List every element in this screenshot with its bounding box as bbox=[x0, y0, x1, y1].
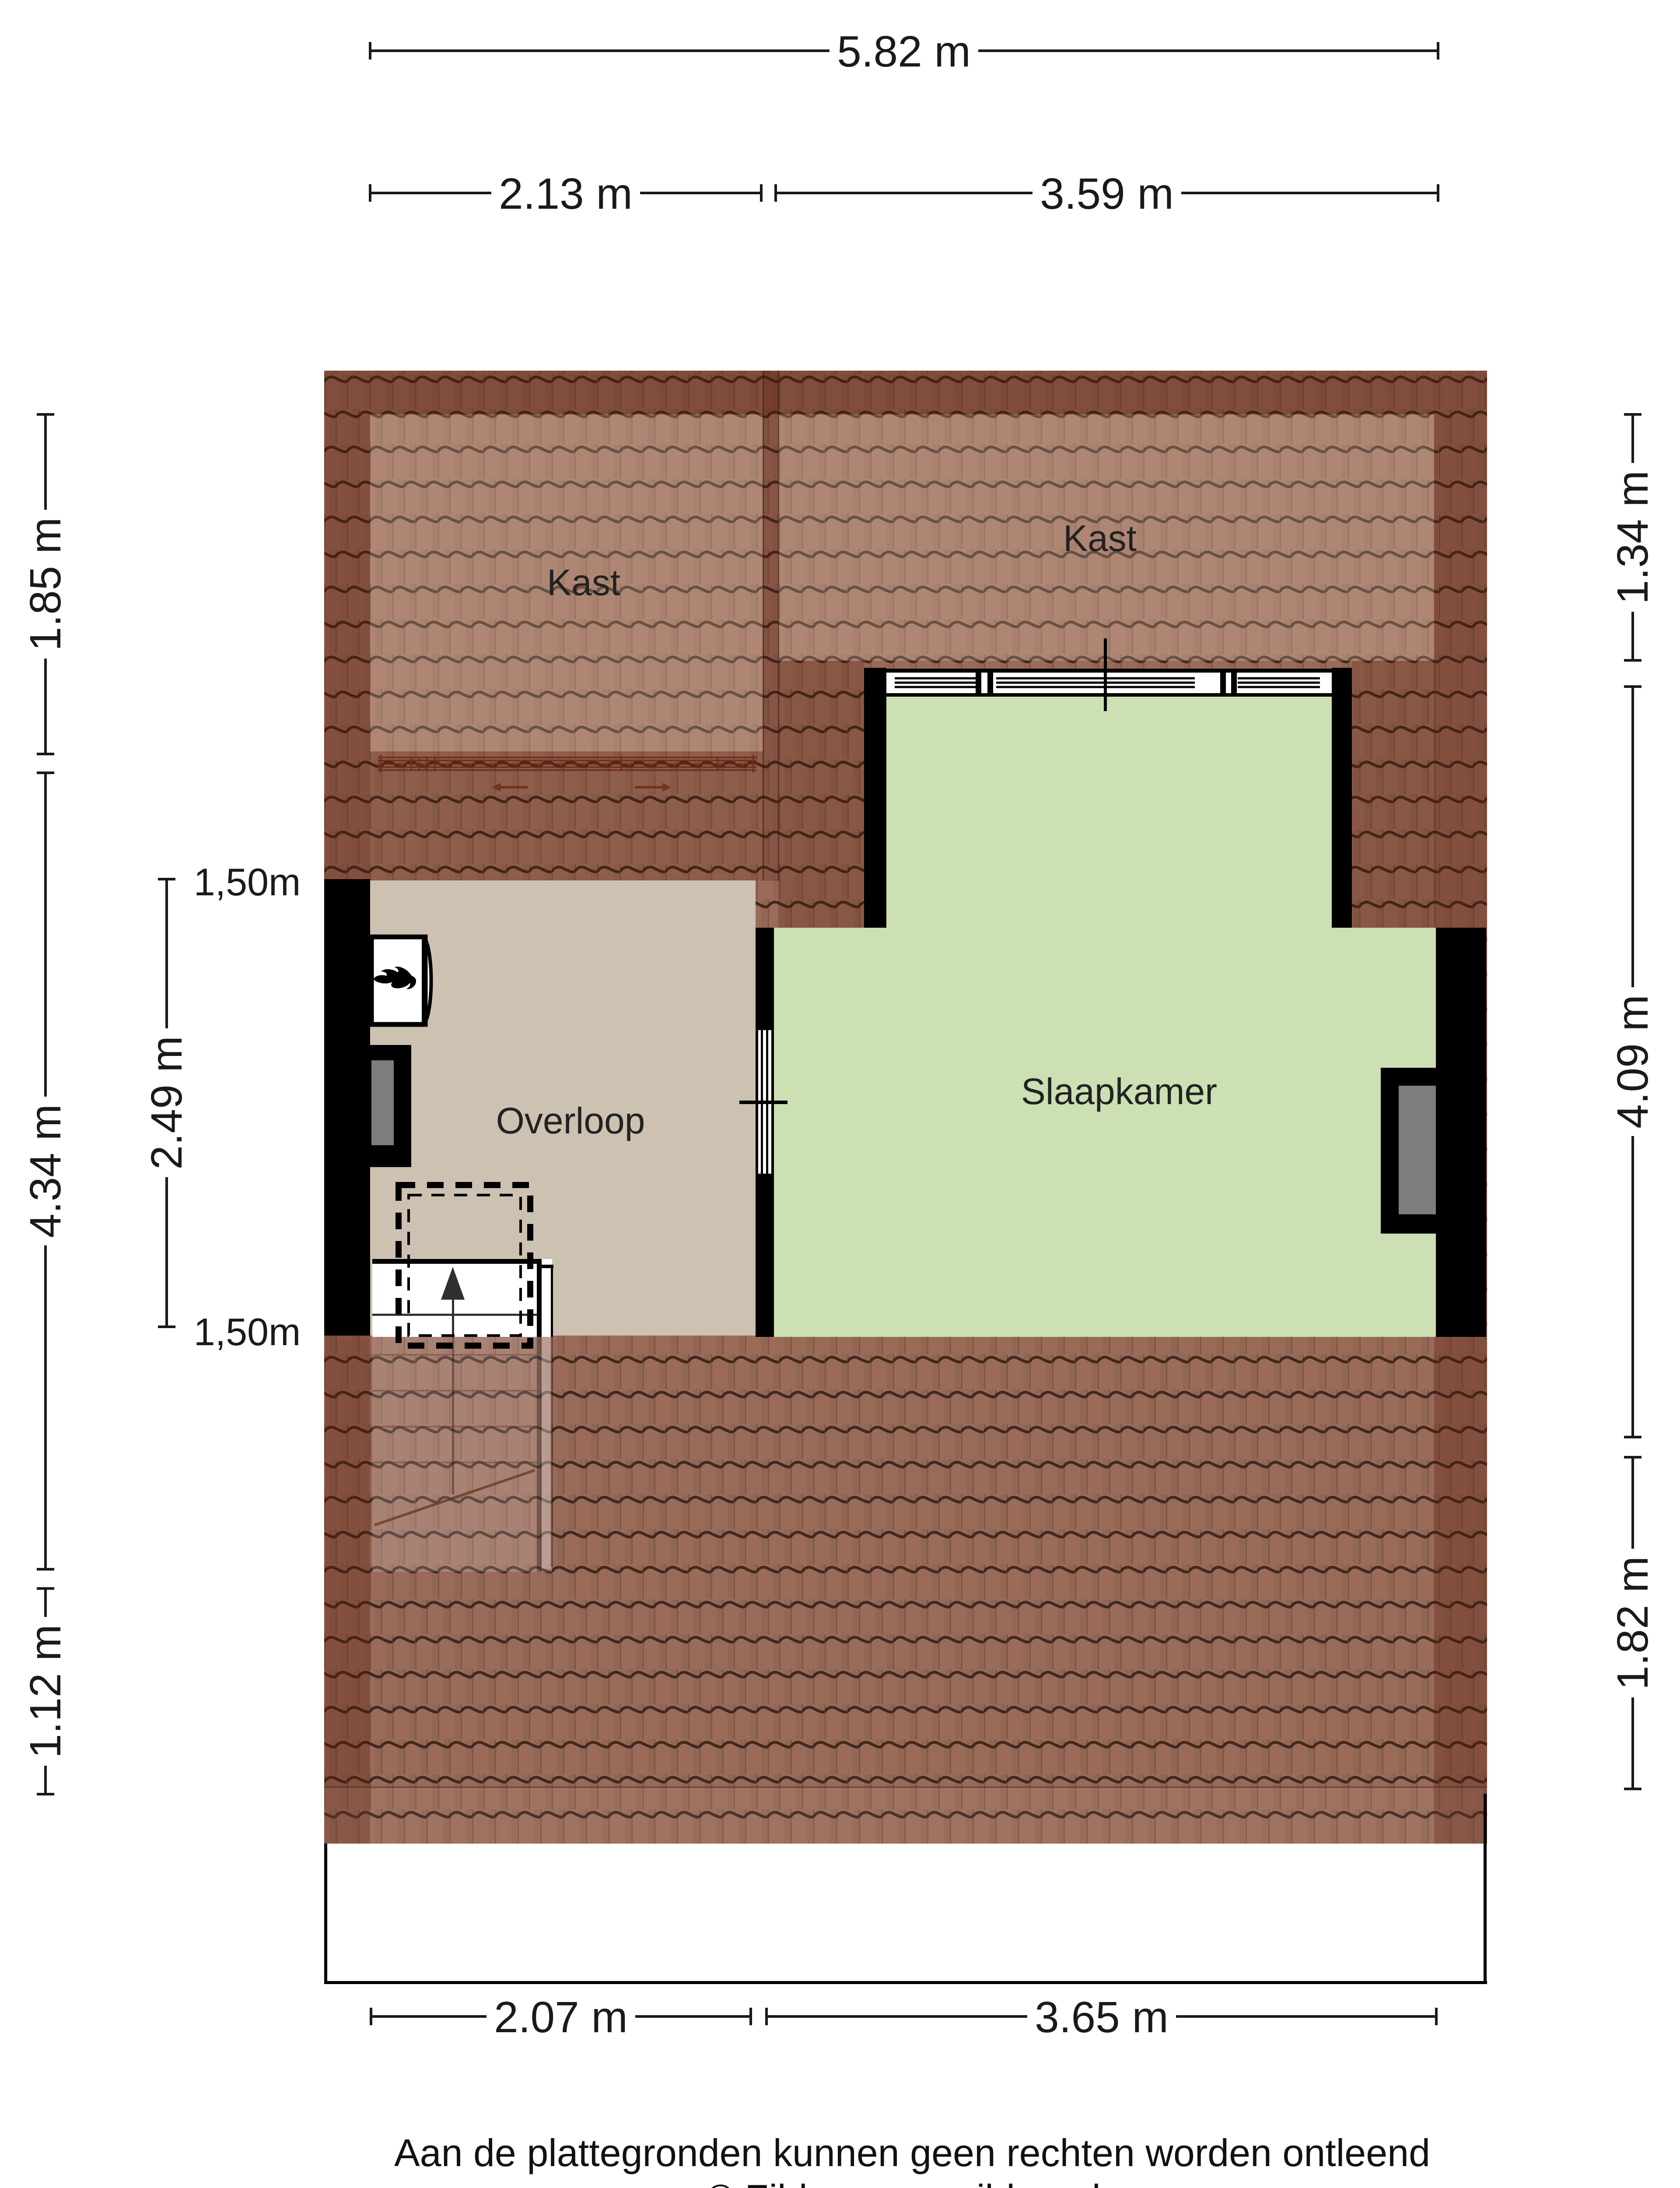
svg-text:2.49 m: 2.49 m bbox=[142, 1036, 191, 1170]
svg-text:1.12 m: 1.12 m bbox=[21, 1624, 70, 1758]
svg-text:1.85 m: 1.85 m bbox=[21, 517, 70, 651]
svg-text:2.13 m: 2.13 m bbox=[499, 169, 633, 218]
svg-text:1.34 m: 1.34 m bbox=[1608, 470, 1657, 604]
svg-text:4.09 m: 4.09 m bbox=[1608, 995, 1657, 1129]
svg-text:Kast: Kast bbox=[547, 562, 620, 603]
svg-text:1.82 m: 1.82 m bbox=[1608, 1556, 1657, 1690]
svg-text:1,50m: 1,50m bbox=[194, 1310, 301, 1353]
svg-text:3.59 m: 3.59 m bbox=[1040, 169, 1174, 218]
svg-text:Aan de plattegronden kunnen ge: Aan de plattegronden kunnen geen rechten… bbox=[394, 2131, 1430, 2174]
svg-text:© Zibber www.zibber.nl: © Zibber www.zibber.nl bbox=[706, 2177, 1100, 2188]
svg-text:3.65 m: 3.65 m bbox=[1035, 1993, 1169, 2042]
svg-text:Overloop: Overloop bbox=[496, 1100, 645, 1141]
svg-text:1,50m: 1,50m bbox=[194, 860, 301, 904]
svg-text:2.07 m: 2.07 m bbox=[494, 1993, 628, 2042]
svg-text:Kast: Kast bbox=[1063, 518, 1137, 559]
svg-text:Slaapkamer: Slaapkamer bbox=[1021, 1071, 1217, 1112]
svg-text:4.34 m: 4.34 m bbox=[21, 1104, 70, 1238]
svg-text:5.82 m: 5.82 m bbox=[837, 27, 971, 76]
